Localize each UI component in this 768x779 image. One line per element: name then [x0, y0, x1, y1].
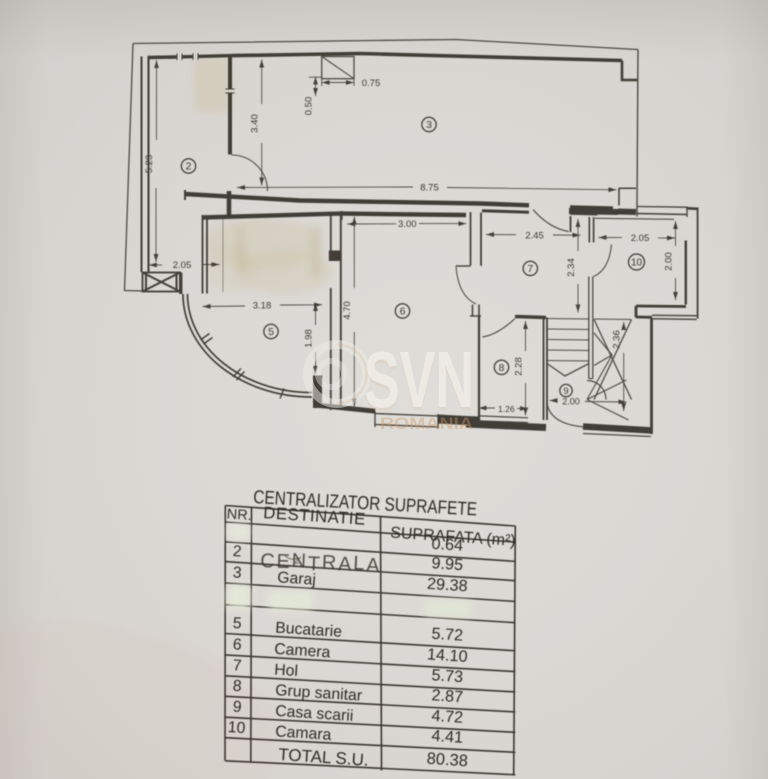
svg-text:9.95: 9.95 [431, 554, 464, 574]
svg-text:1.98: 1.98 [303, 329, 314, 348]
svg-text:2.36: 2.36 [612, 330, 623, 349]
svg-text:NR.: NR. [226, 507, 252, 525]
svg-text:29.38: 29.38 [427, 575, 469, 596]
svg-text:2.00: 2.00 [663, 252, 674, 271]
svg-text:2.00: 2.00 [562, 397, 580, 407]
svg-text:ROMANIA: ROMANIA [380, 415, 473, 433]
svg-text:2.05: 2.05 [173, 260, 192, 271]
svg-text:4.70: 4.70 [342, 301, 353, 320]
svg-text:3.40: 3.40 [249, 114, 260, 133]
svg-text:SVN: SVN [364, 335, 474, 424]
svg-text:0.50: 0.50 [303, 97, 314, 116]
svg-text:10: 10 [631, 258, 643, 269]
svg-text:6: 6 [400, 306, 406, 318]
svg-text:Hol: Hol [274, 662, 299, 681]
svg-text:5.23: 5.23 [144, 155, 155, 174]
svg-text:3: 3 [426, 119, 432, 131]
svg-text:7: 7 [232, 657, 242, 675]
svg-text:0.75: 0.75 [362, 78, 381, 89]
svg-text:8: 8 [232, 678, 242, 696]
svg-text:8.75: 8.75 [420, 183, 439, 194]
svg-text:2: 2 [186, 161, 192, 173]
svg-text:1.26: 1.26 [498, 404, 515, 414]
svg-text:4.72: 4.72 [431, 707, 464, 727]
svg-text:2.87: 2.87 [431, 686, 464, 706]
svg-text:2.05: 2.05 [631, 233, 650, 244]
svg-text:5: 5 [268, 326, 274, 338]
svg-text:3: 3 [232, 564, 242, 582]
svg-text:5: 5 [232, 615, 242, 633]
svg-text:4.41: 4.41 [431, 727, 464, 747]
svg-text:14.10: 14.10 [427, 645, 469, 666]
svg-text:5.72: 5.72 [431, 625, 464, 645]
svg-text:2.28: 2.28 [513, 357, 524, 376]
svg-text:80.38: 80.38 [426, 750, 468, 771]
svg-text:2.34: 2.34 [566, 258, 577, 277]
svg-text:9: 9 [232, 699, 242, 717]
svg-text:10: 10 [227, 719, 246, 737]
svg-text:2.45: 2.45 [525, 231, 544, 242]
svg-text:7: 7 [527, 263, 533, 275]
svg-text:3.00: 3.00 [398, 219, 417, 230]
svg-text:8: 8 [499, 362, 505, 374]
svg-text:2: 2 [232, 543, 242, 561]
svg-text:6: 6 [232, 636, 242, 654]
svg-text:5.73: 5.73 [431, 666, 464, 686]
svg-text:3.18: 3.18 [253, 301, 272, 312]
svg-text:0.64: 0.64 [431, 535, 464, 555]
